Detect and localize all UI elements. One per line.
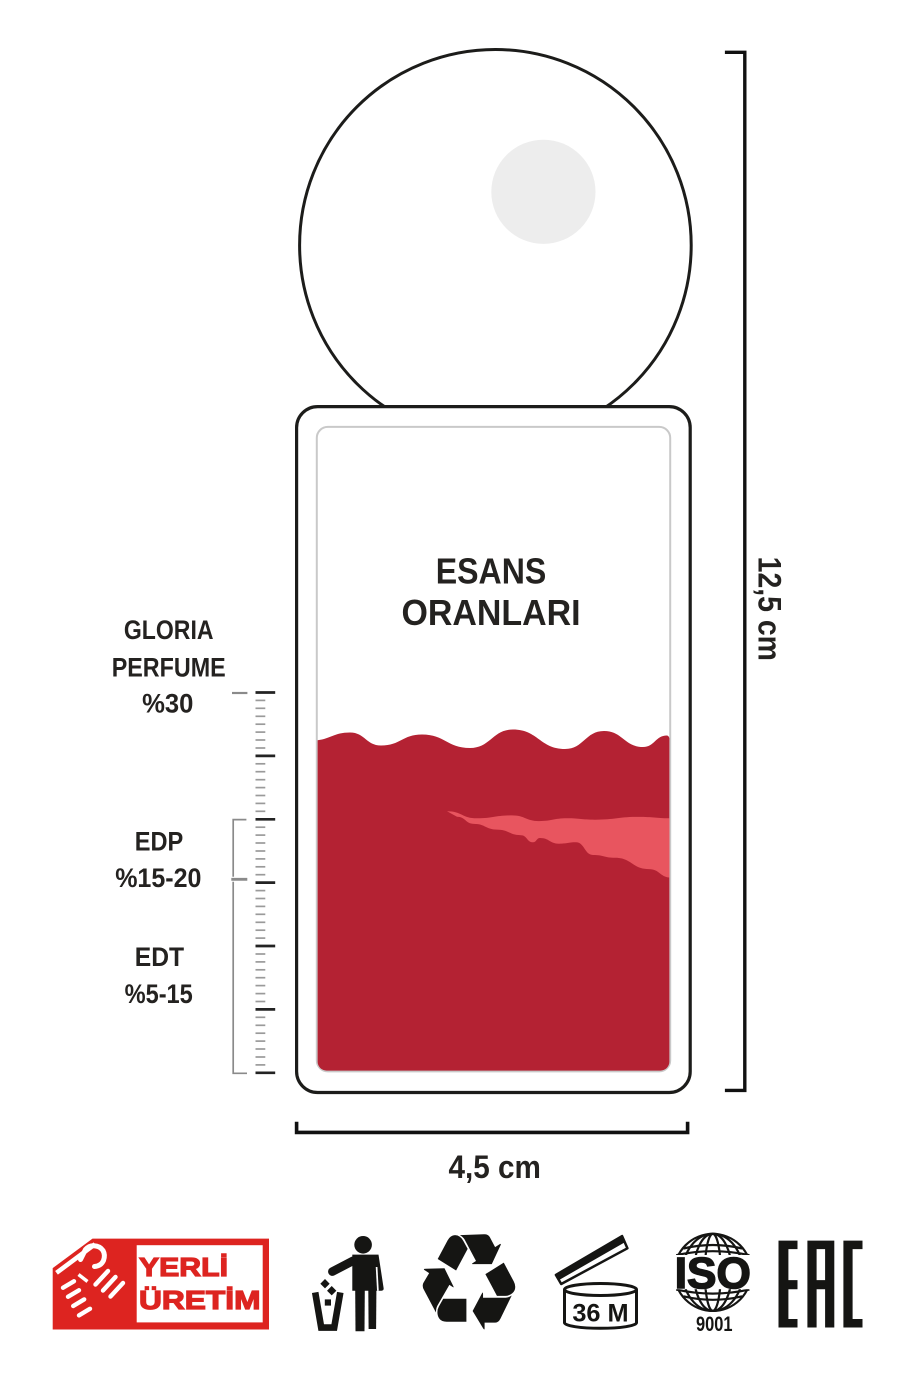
svg-text:%5-15: %5-15 <box>125 979 193 1009</box>
svg-text:ORANLARI: ORANLARI <box>402 592 581 633</box>
svg-text:EDT: EDT <box>135 942 184 972</box>
svg-text:%30: %30 <box>142 689 193 719</box>
svg-text:ESANS: ESANS <box>436 551 547 592</box>
svg-text:GLORIA: GLORIA <box>124 615 214 645</box>
svg-text:%15-20: %15-20 <box>115 863 201 893</box>
svg-text:YERLİ: YERLİ <box>139 1252 228 1282</box>
svg-text:4,5 cm: 4,5 cm <box>449 1149 541 1185</box>
svg-text:PERFUME: PERFUME <box>112 653 226 683</box>
svg-text:ÜRETİM: ÜRETİM <box>139 1285 261 1315</box>
svg-text:36 M: 36 M <box>572 1300 628 1328</box>
svg-text:ISO: ISO <box>675 1249 751 1298</box>
svg-text:9001: 9001 <box>696 1311 733 1336</box>
svg-text:EDP: EDP <box>135 827 184 857</box>
svg-text:12,5 cm: 12,5 cm <box>752 557 788 661</box>
